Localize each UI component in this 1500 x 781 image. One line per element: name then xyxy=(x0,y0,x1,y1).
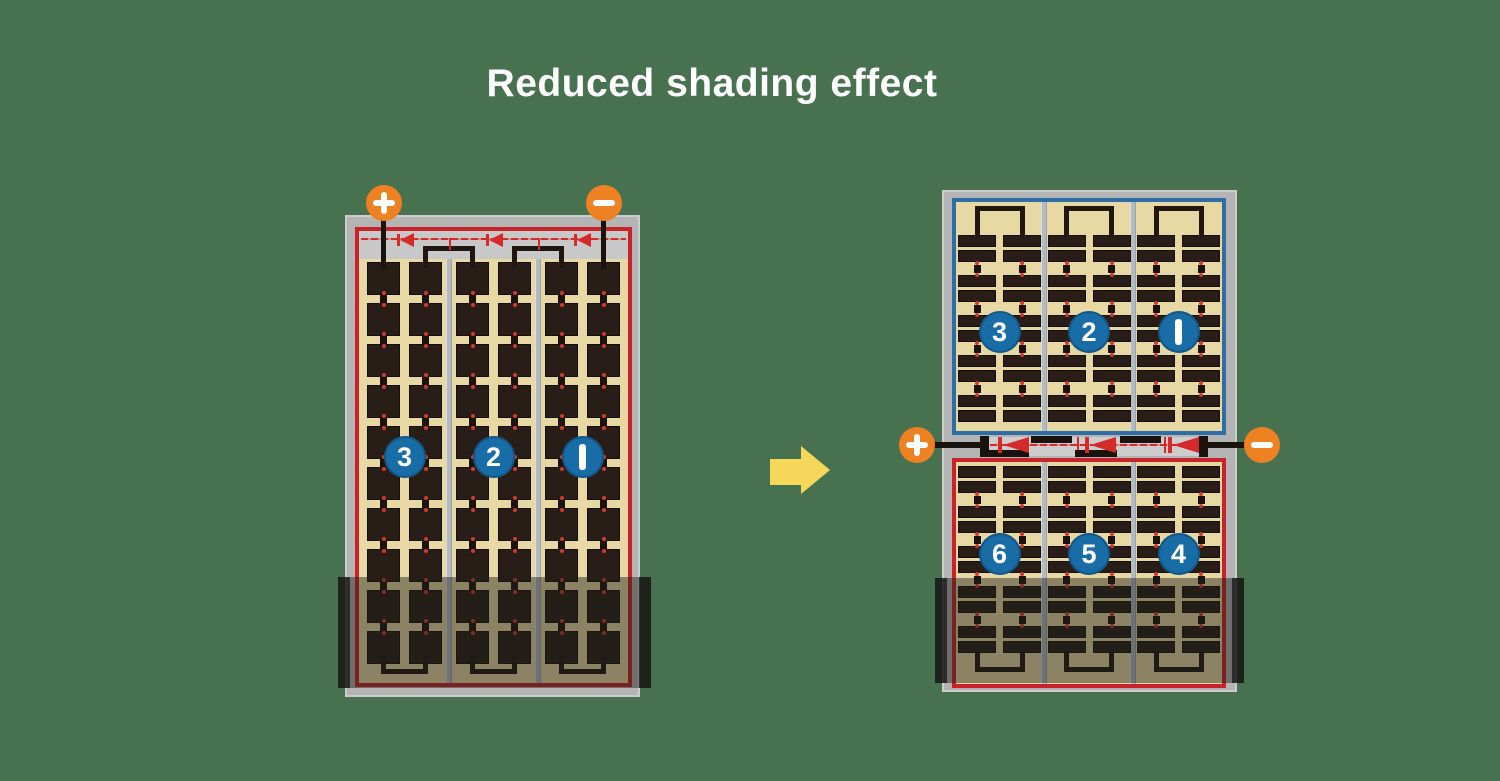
cell-connector-tab xyxy=(1063,496,1070,504)
busbar-leg xyxy=(1199,211,1204,237)
tab-dot xyxy=(1065,381,1069,385)
solar-cell xyxy=(1048,521,1086,533)
section-number-badge: 2 xyxy=(473,436,515,478)
glyph-bar xyxy=(914,434,920,456)
tab-dot xyxy=(1110,381,1114,385)
tab-dot xyxy=(1065,584,1069,588)
solar-cell xyxy=(1093,506,1131,518)
tab-dot xyxy=(1020,584,1024,588)
busbar-leg xyxy=(512,656,517,669)
tab-dot xyxy=(975,532,979,536)
cell-connector-tab xyxy=(1198,265,1205,273)
solar-cell xyxy=(1003,235,1041,247)
tab-dot xyxy=(1020,381,1024,385)
tab-dot xyxy=(1199,612,1203,616)
solar-cell xyxy=(1048,586,1086,598)
cell-connector-tab xyxy=(1153,496,1160,504)
solar-cell xyxy=(1093,330,1131,342)
tab-dot xyxy=(1154,341,1158,345)
cell-connector-tab xyxy=(422,336,429,344)
cell-connector-tab xyxy=(422,623,429,631)
busbar-leg xyxy=(559,251,564,268)
glyph-bar xyxy=(906,442,928,448)
busbar-leg xyxy=(1109,211,1114,237)
tab-dot xyxy=(1199,313,1203,317)
tab-dot xyxy=(471,414,475,418)
solar-cell xyxy=(1137,395,1175,407)
tab-dot xyxy=(1199,532,1203,536)
tab-dot xyxy=(382,344,386,348)
tab-dot xyxy=(602,549,606,553)
tab-dot xyxy=(1110,624,1114,628)
cell-connector-tab xyxy=(1198,496,1205,504)
solar-cell xyxy=(498,631,531,664)
tab-dot xyxy=(382,590,386,594)
section-number: 2 xyxy=(1081,317,1096,348)
section-number-badge: 2 xyxy=(1068,311,1110,353)
tab-dot xyxy=(513,549,517,553)
solar-cell xyxy=(498,385,531,418)
section-number: 3 xyxy=(992,317,1007,348)
tab-dot xyxy=(1199,353,1203,357)
solar-cell xyxy=(1137,521,1175,533)
glyph-bar xyxy=(373,200,395,206)
solar-cell xyxy=(1182,370,1220,382)
tab-dot xyxy=(975,612,979,616)
busbar-bridge xyxy=(381,669,428,674)
cell-connector-tab xyxy=(469,295,476,303)
minus-terminal xyxy=(1244,427,1280,463)
cell-connector-tab xyxy=(511,418,518,426)
diode-cathode-bar xyxy=(574,234,577,246)
tab-dot xyxy=(602,344,606,348)
solar-cell xyxy=(1093,235,1131,247)
solar-cell xyxy=(1182,641,1220,653)
busbar-leg xyxy=(975,211,980,237)
tab-dot xyxy=(1065,353,1069,357)
glyph-bar xyxy=(593,200,615,206)
tab-dot xyxy=(1020,341,1024,345)
standard-panel-illustration: 32 xyxy=(0,0,1500,781)
solar-cell xyxy=(367,467,400,500)
solar-cell xyxy=(1137,466,1175,478)
solar-cell xyxy=(1048,355,1086,367)
tab-dot xyxy=(382,578,386,582)
solar-cell xyxy=(1003,275,1041,287)
cell-connector-tab xyxy=(974,345,981,353)
tab-dot xyxy=(424,537,428,541)
cell-connector-tab xyxy=(380,500,387,508)
tab-dot xyxy=(1020,532,1024,536)
shade-overlay xyxy=(338,577,651,688)
solar-cell xyxy=(1093,395,1131,407)
solar-cell xyxy=(1048,275,1086,287)
solar-cell xyxy=(958,601,996,613)
solar-cell xyxy=(545,303,578,336)
tab-dot xyxy=(975,393,979,397)
solar-cell xyxy=(1048,410,1086,422)
cell-connector-tab xyxy=(600,459,607,467)
solar-cell xyxy=(1182,330,1220,342)
solar-cell xyxy=(1048,395,1086,407)
cell-connector-tab xyxy=(600,623,607,631)
cell-connector-tab xyxy=(1153,385,1160,393)
junction-strip xyxy=(359,231,628,259)
cell-connector-tab xyxy=(1019,576,1026,584)
tab-dot xyxy=(1110,504,1114,508)
diode-line-tick xyxy=(1164,437,1166,453)
tab-dot xyxy=(1020,261,1024,265)
solar-cell xyxy=(456,262,489,295)
diode-icon xyxy=(400,233,414,247)
cell-connector-tab xyxy=(422,459,429,467)
tab-dot xyxy=(560,414,564,418)
tab-dot xyxy=(560,455,564,459)
tab-dot xyxy=(1110,273,1114,277)
busbar-leg xyxy=(423,251,428,268)
tab-dot xyxy=(975,504,979,508)
cell-connector-tab xyxy=(1019,265,1026,273)
section-divider xyxy=(1130,202,1136,431)
solar-cell xyxy=(1048,546,1086,558)
cell-connector-tab xyxy=(1108,305,1115,313)
solar-cell xyxy=(1093,641,1131,653)
solar-cell xyxy=(367,262,400,295)
solar-cell xyxy=(1003,370,1041,382)
tab-dot xyxy=(382,414,386,418)
minus-icon xyxy=(1251,434,1273,456)
tab-dot xyxy=(513,373,517,377)
solar-cell xyxy=(409,508,442,541)
tab-dot xyxy=(1020,492,1024,496)
cell-connector-tab xyxy=(422,500,429,508)
solar-cell xyxy=(587,385,620,418)
solar-cell xyxy=(1137,601,1175,613)
solar-cell xyxy=(958,561,996,573)
solar-cell xyxy=(958,250,996,262)
tab-dot xyxy=(513,385,517,389)
tab-dot xyxy=(1020,313,1024,317)
tab-dot xyxy=(471,344,475,348)
cell-connector-tab xyxy=(974,536,981,544)
tab-dot xyxy=(382,303,386,307)
diode-line-tick xyxy=(449,238,451,250)
solar-cell xyxy=(367,590,400,623)
tab-dot xyxy=(513,467,517,471)
solar-cell xyxy=(545,426,578,459)
tab-dot xyxy=(602,455,606,459)
solar-cell xyxy=(958,330,996,342)
tab-dot xyxy=(560,291,564,295)
tab-dot xyxy=(560,344,564,348)
busbar-bridge xyxy=(1154,206,1204,211)
tab-dot xyxy=(1154,261,1158,265)
section-divider xyxy=(1041,462,1047,684)
solar-cell xyxy=(958,506,996,518)
solar-cell xyxy=(1003,395,1041,407)
numeral-one-glyph xyxy=(579,444,586,470)
tab-dot xyxy=(471,590,475,594)
solar-cell xyxy=(498,344,531,377)
solar-cell xyxy=(1003,355,1041,367)
tab-dot xyxy=(513,537,517,541)
tab-dot xyxy=(1020,273,1024,277)
solar-cell xyxy=(1182,315,1220,327)
tab-dot xyxy=(424,578,428,582)
tab-dot xyxy=(602,467,606,471)
solar-cell xyxy=(498,549,531,582)
cell-connector-tab xyxy=(600,418,607,426)
solar-cell xyxy=(456,631,489,664)
tab-dot xyxy=(1154,612,1158,616)
solar-cell xyxy=(545,590,578,623)
cell-connector-tab xyxy=(511,377,518,385)
solar-cell xyxy=(498,590,531,623)
cell-connector-tab xyxy=(558,623,565,631)
glyph-bar xyxy=(1251,442,1273,448)
section-number: 6 xyxy=(992,539,1007,570)
cell-connector-tab xyxy=(380,418,387,426)
cell-connector-tab xyxy=(1108,265,1115,273)
solar-cell xyxy=(1093,355,1131,367)
busbar-leg xyxy=(1020,211,1025,237)
solar-cell xyxy=(587,631,620,664)
section-divider xyxy=(1041,202,1047,431)
tab-dot xyxy=(382,467,386,471)
tab-dot xyxy=(1110,544,1114,548)
tab-dot xyxy=(1154,393,1158,397)
solar-cell xyxy=(1093,601,1131,613)
tab-dot xyxy=(471,467,475,471)
tab-dot xyxy=(1110,584,1114,588)
cell-connector-tab xyxy=(558,541,565,549)
solar-cell xyxy=(958,370,996,382)
tab-dot xyxy=(424,549,428,553)
tab-dot xyxy=(602,496,606,500)
section-number-badge: 6 xyxy=(979,533,1021,575)
busbar-leg xyxy=(1154,211,1159,237)
tab-dot xyxy=(602,537,606,541)
solar-cell xyxy=(1003,641,1041,653)
cell-connector-tab xyxy=(1198,616,1205,624)
half-string-border-bottom xyxy=(952,458,1226,688)
tab-dot xyxy=(1154,584,1158,588)
solar-cell xyxy=(1182,481,1220,493)
tab-dot xyxy=(382,373,386,377)
cell-connector-tab xyxy=(1108,345,1115,353)
solar-cell xyxy=(1182,250,1220,262)
cell-connector-tab xyxy=(469,541,476,549)
half-string-border-top xyxy=(952,198,1226,435)
cell-connector-tab xyxy=(600,377,607,385)
solar-cell xyxy=(1093,370,1131,382)
solar-cell xyxy=(958,315,996,327)
cell-connector-tab xyxy=(422,541,429,549)
solar-cell xyxy=(409,590,442,623)
tab-dot xyxy=(1154,492,1158,496)
section-number: 2 xyxy=(486,442,501,473)
solar-cell xyxy=(1048,250,1086,262)
tab-dot xyxy=(471,291,475,295)
tab-dot xyxy=(602,426,606,430)
section-divider xyxy=(535,259,541,683)
reduced-shading-diagram: Reduced shading effect 32 32654 xyxy=(0,0,1500,781)
tab-dot xyxy=(560,467,564,471)
tab-dot xyxy=(560,631,564,635)
transform-arrow xyxy=(0,0,1500,781)
tab-dot xyxy=(471,385,475,389)
cell-connector-tab xyxy=(422,295,429,303)
tab-dot xyxy=(424,508,428,512)
tab-dot xyxy=(382,385,386,389)
tab-dot xyxy=(975,261,979,265)
solar-cell xyxy=(1137,290,1175,302)
cell-connector-tab xyxy=(511,336,518,344)
tab-dot xyxy=(471,303,475,307)
solar-cell xyxy=(1137,275,1175,287)
solar-cell xyxy=(1093,561,1131,573)
solar-cell xyxy=(367,385,400,418)
solar-cell xyxy=(1093,275,1131,287)
solar-cell xyxy=(958,546,996,558)
tab-dot xyxy=(975,492,979,496)
cell-connector-tab xyxy=(380,377,387,385)
solar-cell xyxy=(456,549,489,582)
plus-icon xyxy=(906,434,928,456)
solar-cell xyxy=(1182,410,1220,422)
tab-dot xyxy=(1154,624,1158,628)
tab-dot xyxy=(602,332,606,336)
diode-icon xyxy=(577,233,591,247)
solar-cell xyxy=(409,426,442,459)
cell-connector-tab xyxy=(380,541,387,549)
tab-dot xyxy=(1110,572,1114,576)
tab-dot xyxy=(424,414,428,418)
busbar-bridge xyxy=(1154,667,1204,672)
terminal-wire xyxy=(934,442,980,448)
tab-dot xyxy=(1065,313,1069,317)
tab-dot xyxy=(1065,532,1069,536)
cell-connector-tab xyxy=(511,541,518,549)
bypass-diode-line xyxy=(990,444,1199,446)
solar-cell xyxy=(1048,315,1086,327)
panel-frame xyxy=(345,215,640,697)
shade-edge xyxy=(639,577,651,688)
cell-connector-tab xyxy=(1063,536,1070,544)
tab-dot xyxy=(1199,504,1203,508)
solar-cell xyxy=(1137,481,1175,493)
tab-dot xyxy=(382,332,386,336)
cell-connector-tab xyxy=(600,541,607,549)
cell-connector-tab xyxy=(380,336,387,344)
busbar-bridge xyxy=(470,669,517,674)
busbar-bridge xyxy=(512,246,564,251)
tab-dot xyxy=(1154,544,1158,548)
tab-dot xyxy=(1020,353,1024,357)
solar-cell xyxy=(1048,481,1086,493)
solar-cell xyxy=(545,549,578,582)
diode-line-tick xyxy=(1077,437,1079,453)
tab-dot xyxy=(513,619,517,623)
junction-busbar xyxy=(1120,436,1161,443)
busbar-leg xyxy=(470,251,475,268)
cell-connector-tab xyxy=(1108,576,1115,584)
solar-cell xyxy=(958,626,996,638)
busbar-leg xyxy=(1109,653,1114,667)
tab-dot xyxy=(1110,301,1114,305)
tab-dot xyxy=(382,291,386,295)
right-arrow-shaft xyxy=(770,459,801,485)
tab-dot xyxy=(1199,393,1203,397)
solar-cell xyxy=(1003,466,1041,478)
junction-stub xyxy=(980,436,989,457)
solar-cell xyxy=(1003,601,1041,613)
solar-cell xyxy=(1137,586,1175,598)
tab-dot xyxy=(1020,544,1024,548)
tab-dot xyxy=(560,332,564,336)
cell-connector-tab xyxy=(422,418,429,426)
solar-cell xyxy=(545,508,578,541)
busbar-leg xyxy=(381,656,386,669)
solar-cell xyxy=(498,426,531,459)
solar-cell xyxy=(1093,481,1131,493)
solar-cell xyxy=(1093,315,1131,327)
tab-dot xyxy=(1065,624,1069,628)
solar-cell xyxy=(587,467,620,500)
busbar-bridge xyxy=(559,669,606,674)
tab-dot xyxy=(471,537,475,541)
section-divider xyxy=(1130,462,1136,684)
tab-dot xyxy=(975,572,979,576)
solar-cell xyxy=(1093,410,1131,422)
cell-connector-tab xyxy=(1063,305,1070,313)
solar-cell xyxy=(367,303,400,336)
tab-dot xyxy=(1110,532,1114,536)
busbar-bridge xyxy=(975,667,1025,672)
solar-cell xyxy=(456,385,489,418)
busbar-leg xyxy=(1064,653,1069,667)
cell-connector-tab xyxy=(558,459,565,467)
cell-connector-tab xyxy=(469,582,476,590)
tab-dot xyxy=(975,381,979,385)
cell-connector-tab xyxy=(511,459,518,467)
diode-cathode-bar xyxy=(1168,437,1172,453)
series-loop-border xyxy=(355,227,632,687)
busbar-leg xyxy=(559,656,564,669)
tab-dot xyxy=(602,590,606,594)
solar-cell xyxy=(958,355,996,367)
solar-cell xyxy=(1137,410,1175,422)
tab-dot xyxy=(560,508,564,512)
tab-dot xyxy=(382,455,386,459)
solar-cell xyxy=(1048,290,1086,302)
tab-dot xyxy=(1065,301,1069,305)
solar-cell xyxy=(498,303,531,336)
tab-dot xyxy=(602,578,606,582)
tab-dot xyxy=(471,631,475,635)
cell-connector-tab xyxy=(469,459,476,467)
cell-connector-tab xyxy=(1108,385,1115,393)
tab-dot xyxy=(1154,301,1158,305)
tab-dot xyxy=(424,467,428,471)
solar-cell xyxy=(587,303,620,336)
solar-cell xyxy=(1182,561,1220,573)
solar-cell xyxy=(1137,641,1175,653)
cell-connector-tab xyxy=(380,582,387,590)
tab-dot xyxy=(424,344,428,348)
cell-connector-tab xyxy=(511,582,518,590)
panel-glass-top xyxy=(956,202,1222,431)
